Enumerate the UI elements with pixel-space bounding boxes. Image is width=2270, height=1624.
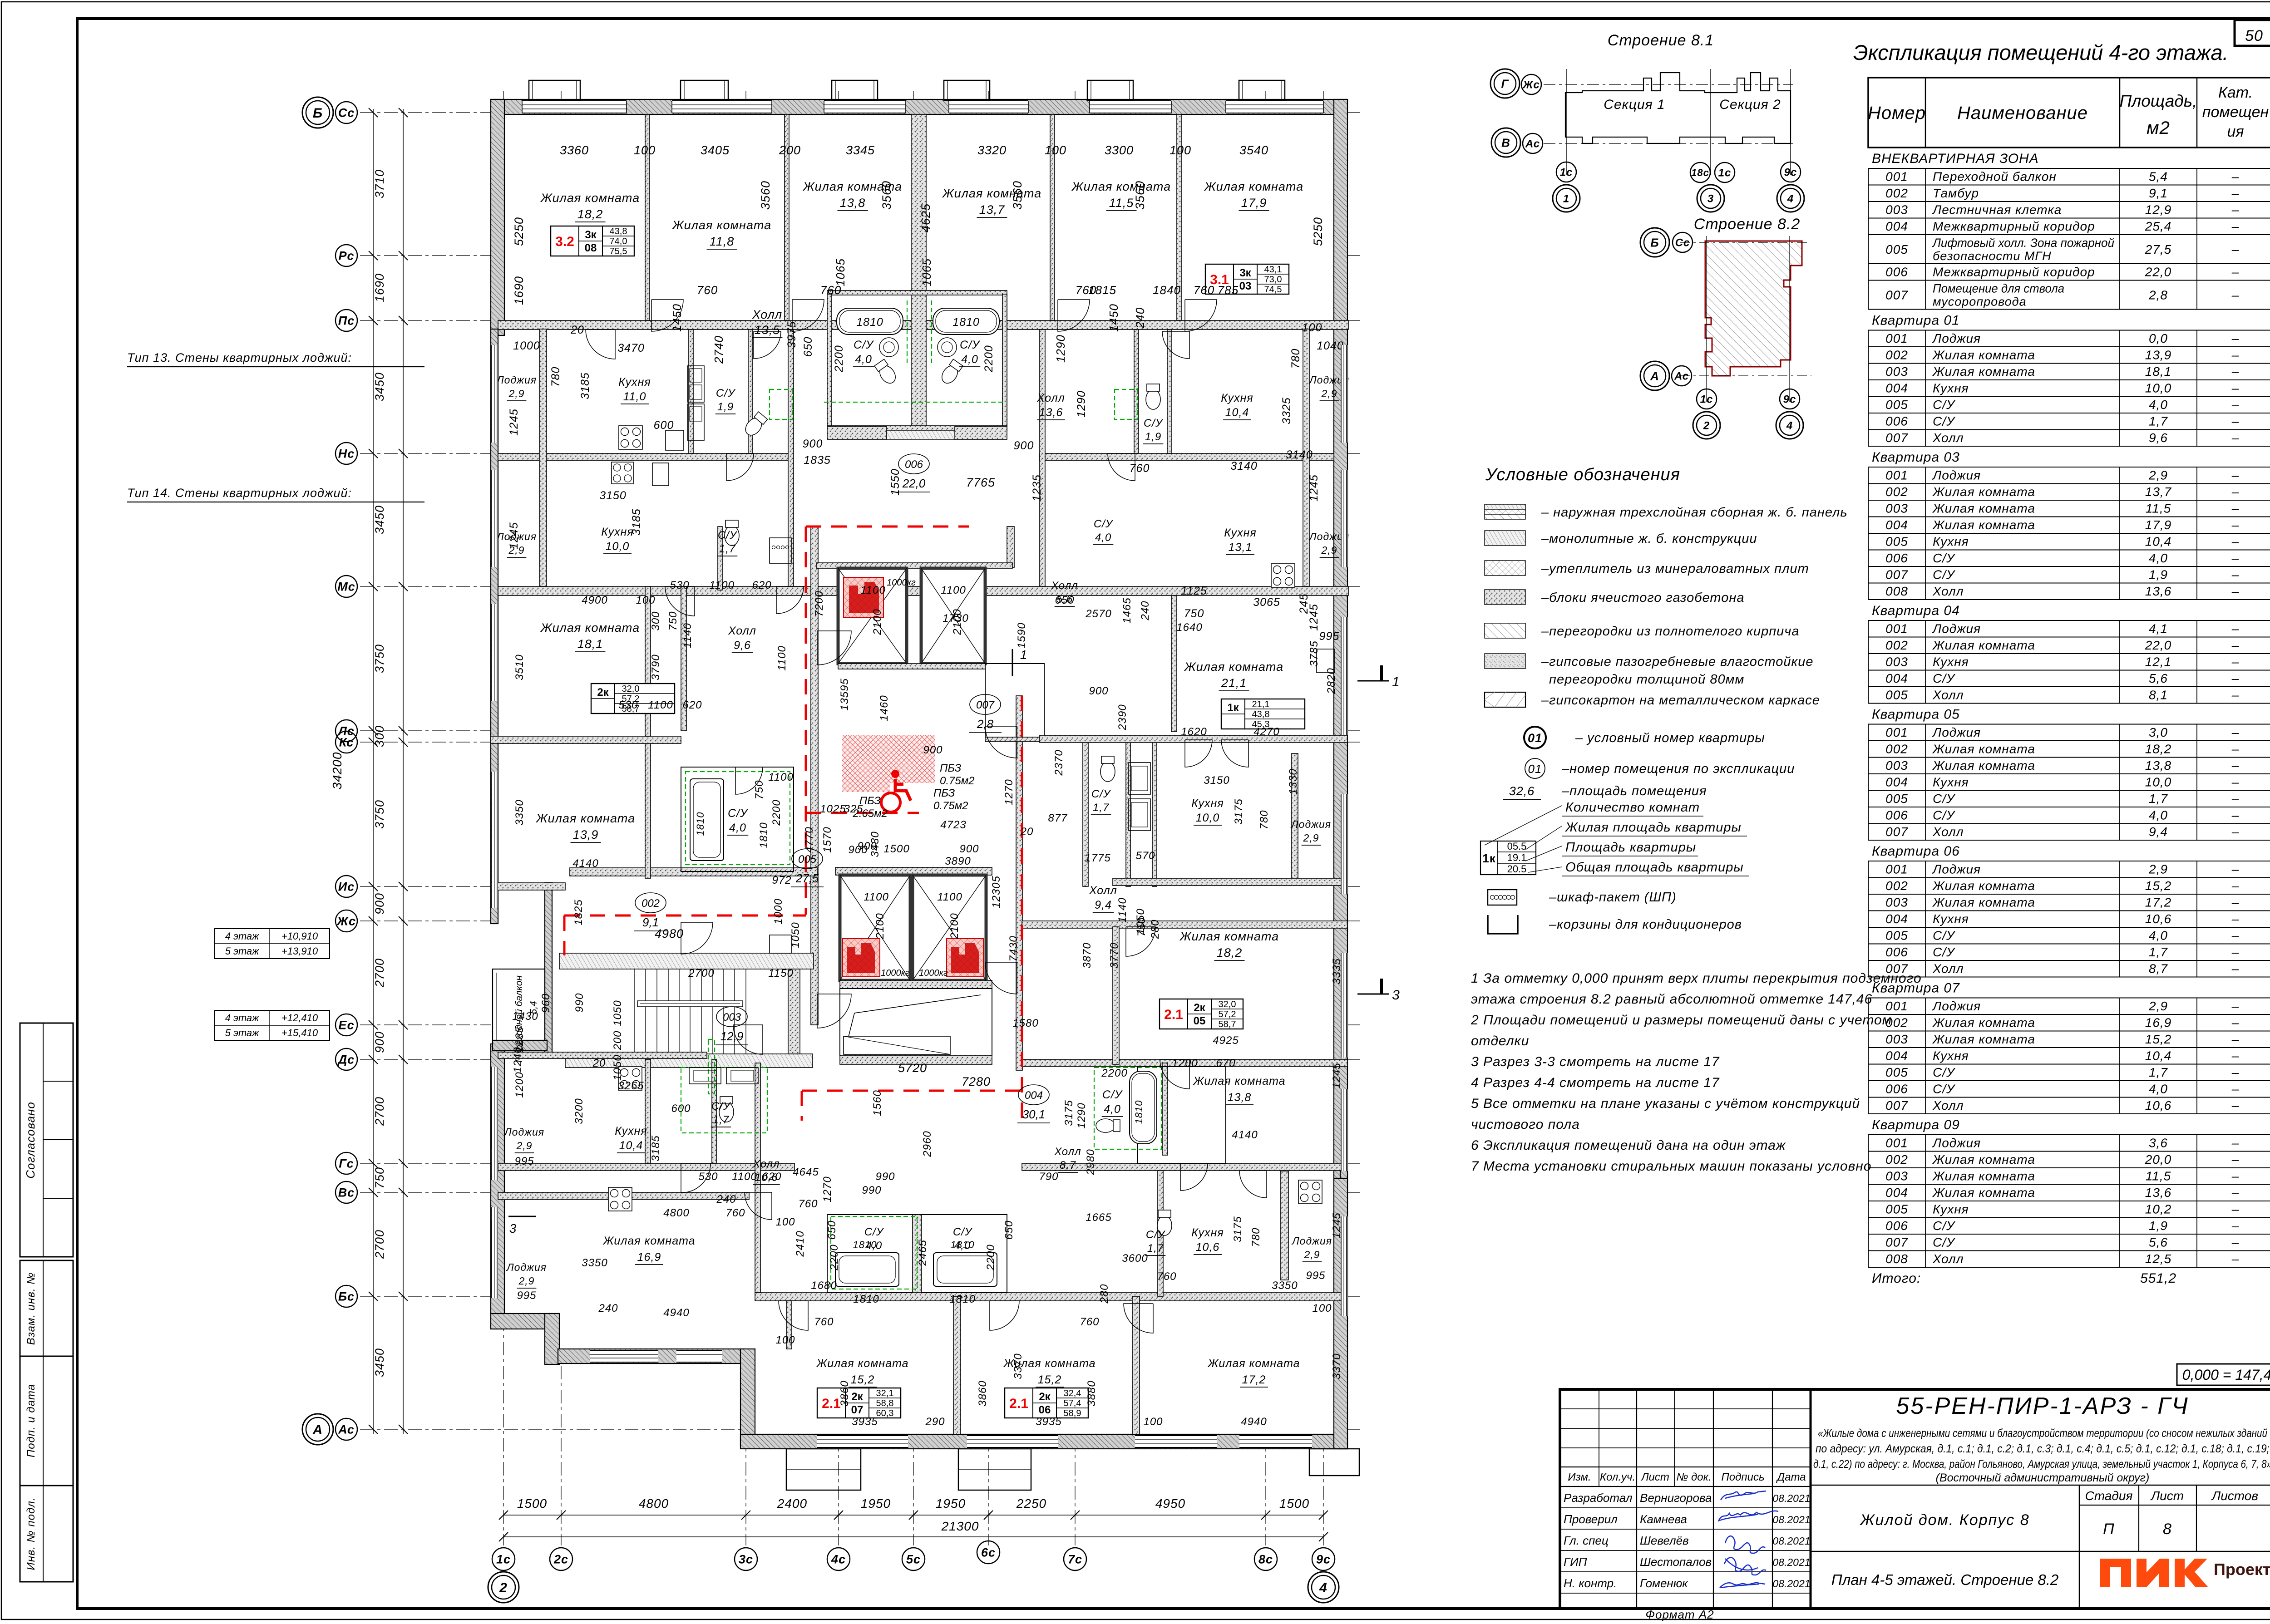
svg-text:1235: 1235 bbox=[1031, 474, 1043, 502]
svg-text:1000кг: 1000кг bbox=[919, 968, 948, 978]
svg-text:В: В bbox=[1501, 136, 1510, 149]
svg-text:2: 2 bbox=[499, 1580, 508, 1595]
svg-text:15,2: 15,2 bbox=[2145, 1032, 2172, 1046]
svg-text:–: – bbox=[2231, 1098, 2240, 1112]
svg-text:003: 003 bbox=[1885, 364, 1908, 379]
svg-text:18,2: 18,2 bbox=[577, 207, 603, 221]
svg-text:С/У: С/У bbox=[854, 339, 874, 351]
svg-text:Кухня: Кухня bbox=[1933, 1049, 1969, 1063]
svg-text:001: 001 bbox=[1885, 622, 1908, 636]
svg-text:1500: 1500 bbox=[883, 843, 909, 855]
svg-text:1950: 1950 bbox=[936, 1496, 966, 1511]
svg-text:м2: м2 bbox=[2147, 118, 2170, 138]
svg-text:4,0: 4,0 bbox=[961, 353, 978, 366]
svg-text:760: 760 bbox=[1080, 1316, 1099, 1328]
svg-text:007: 007 bbox=[1885, 1235, 1908, 1250]
svg-text:27,5: 27,5 bbox=[2145, 242, 2172, 256]
svg-text:3175: 3175 bbox=[1233, 798, 1245, 824]
svg-text:1к: 1к bbox=[1482, 851, 1495, 865]
svg-text:Вс: Вс bbox=[338, 1186, 355, 1200]
svg-text:Холл: Холл bbox=[1932, 962, 1964, 976]
svg-text:Гоменюк: Гоменюк bbox=[1640, 1576, 1688, 1590]
svg-text:32,6: 32,6 bbox=[1509, 784, 1535, 798]
svg-text:1 За отметку 0,000 принят верх: 1 За отметку 0,000 принят верх плиты пер… bbox=[1471, 971, 1922, 986]
svg-text:помещен: помещен bbox=[2202, 103, 2269, 121]
svg-text:Холл: Холл bbox=[1054, 1146, 1081, 1158]
svg-text:9,4: 9,4 bbox=[2149, 825, 2168, 839]
svg-text:Холл: Холл bbox=[1932, 825, 1964, 839]
svg-text:Лоджия: Лоджия bbox=[1932, 725, 1981, 739]
svg-text:Межквартирный коридор: Межквартирный коридор bbox=[1933, 219, 2095, 233]
svg-text:13,5: 13,5 bbox=[755, 323, 780, 337]
svg-text:3750: 3750 bbox=[373, 644, 386, 673]
svg-text:1с: 1с bbox=[1560, 167, 1573, 179]
svg-text:Кухня: Кухня bbox=[1933, 912, 1969, 926]
svg-text:10,4: 10,4 bbox=[619, 1139, 643, 1152]
svg-text:5720: 5720 bbox=[898, 1061, 927, 1075]
svg-text:Шевелёв: Шевелёв bbox=[1640, 1534, 1689, 1547]
svg-text:32,1: 32,1 bbox=[876, 1388, 894, 1398]
svg-text:Секция 2: Секция 2 bbox=[1719, 97, 1781, 112]
svg-text:1680: 1680 bbox=[811, 1280, 837, 1292]
svg-text:1500: 1500 bbox=[517, 1496, 547, 1511]
svg-text:1450: 1450 bbox=[670, 304, 684, 332]
svg-text:11,5: 11,5 bbox=[2146, 1169, 2171, 1183]
svg-text:2980: 2980 bbox=[1085, 1149, 1097, 1175]
svg-text:01: 01 bbox=[1528, 731, 1542, 745]
svg-text:2,9: 2,9 bbox=[1304, 1249, 1320, 1260]
svg-text:10,4: 10,4 bbox=[2145, 535, 2172, 549]
svg-text:Холл: Холл bbox=[752, 308, 782, 321]
svg-text:1570: 1570 bbox=[821, 827, 834, 852]
svg-text:1: 1 bbox=[1020, 648, 1028, 662]
svg-text:2,9: 2,9 bbox=[1321, 388, 1337, 399]
svg-text:4270: 4270 bbox=[1253, 726, 1279, 738]
svg-text:004: 004 bbox=[1885, 912, 1908, 926]
svg-text:–: – bbox=[2231, 288, 2240, 302]
svg-text:551,2: 551,2 bbox=[2140, 1271, 2176, 1286]
svg-text:15,2: 15,2 bbox=[851, 1373, 875, 1386]
svg-text:18,1: 18,1 bbox=[577, 637, 603, 651]
svg-text:П: П bbox=[2103, 1521, 2115, 1538]
svg-text:1730: 1730 bbox=[943, 612, 968, 625]
svg-text:003: 003 bbox=[1885, 1032, 1908, 1046]
svg-text:С/У: С/У bbox=[864, 1226, 884, 1238]
svg-text:43,1: 43,1 bbox=[1264, 265, 1282, 275]
svg-text:Межквартирный коридор: Межквартирный коридор bbox=[1933, 265, 2095, 279]
svg-text:5 этаж: 5 этаж bbox=[225, 1027, 259, 1038]
svg-text:3510: 3510 bbox=[513, 654, 526, 680]
svg-text:2,9: 2,9 bbox=[516, 1140, 533, 1152]
svg-text:1050: 1050 bbox=[612, 1000, 624, 1026]
svg-text:100: 100 bbox=[1045, 143, 1066, 157]
svg-text:отделки: отделки bbox=[1471, 1033, 1529, 1048]
svg-text:–: – bbox=[2231, 1152, 2240, 1166]
svg-text:«Жилые дома с инженерными сетя: «Жилые дома с инженерными сетями и благо… bbox=[1818, 1427, 2267, 1440]
svg-text:10,4: 10,4 bbox=[1225, 406, 1249, 419]
svg-text:Квартира 01: Квартира 01 bbox=[1872, 313, 1960, 328]
svg-text:3750: 3750 bbox=[373, 800, 386, 829]
svg-text:Жилая комната: Жилая комната bbox=[815, 1357, 908, 1370]
svg-text:007: 007 bbox=[1885, 568, 1908, 582]
svg-text:780: 780 bbox=[549, 367, 562, 387]
svg-text:4с: 4с bbox=[831, 1553, 846, 1566]
svg-text:17,9: 17,9 bbox=[2145, 518, 2172, 532]
svg-text:Нс: Нс bbox=[338, 447, 355, 461]
svg-text:900: 900 bbox=[1014, 439, 1034, 452]
svg-text:5250: 5250 bbox=[1311, 217, 1325, 246]
svg-text:100: 100 bbox=[775, 1334, 795, 1346]
svg-text:С/У: С/У bbox=[1933, 1082, 1956, 1096]
svg-text:Экспликация помещений 4-го эта: Экспликация помещений 4-го этажа. bbox=[1853, 40, 2229, 64]
svg-text:3560: 3560 bbox=[1133, 181, 1147, 210]
svg-text:С/У: С/У bbox=[718, 529, 738, 541]
svg-text:План 4-5 этажей. Строение 8.2: План 4-5 этажей. Строение 8.2 bbox=[1831, 1571, 2058, 1588]
svg-text:С/У: С/У bbox=[1933, 671, 1956, 685]
svg-text:2820: 2820 bbox=[1325, 668, 1337, 694]
svg-text:32,4: 32,4 bbox=[1064, 1388, 1081, 1398]
svg-text:01: 01 bbox=[1528, 762, 1542, 776]
svg-text:08.2021: 08.2021 bbox=[1772, 1492, 1810, 1504]
svg-text:3360: 3360 bbox=[560, 143, 589, 157]
svg-text:–гипсокартон на металлическом: –гипсокартон на металлическом каркасе bbox=[1541, 693, 1820, 708]
svg-text:Лоджия: Лоджия bbox=[1291, 1235, 1332, 1247]
svg-text:Лист: Лист bbox=[1640, 1471, 1669, 1483]
svg-text:12,1: 12,1 bbox=[2145, 655, 2172, 669]
svg-text:760: 760 bbox=[798, 1198, 818, 1210]
svg-text:3325: 3325 bbox=[1280, 397, 1293, 424]
svg-text:по адресу: ул. Амурская, д.1,: по адресу: ул. Амурская, д.1, с.1; д.1, … bbox=[1816, 1442, 2270, 1455]
svg-text:005: 005 bbox=[1885, 398, 1908, 412]
svg-text:600: 600 bbox=[654, 419, 674, 432]
svg-text:2700: 2700 bbox=[373, 1097, 386, 1126]
svg-text:–: – bbox=[2231, 1235, 2240, 1250]
svg-text:1290: 1290 bbox=[1075, 390, 1088, 418]
svg-text:–: – bbox=[2231, 999, 2240, 1013]
svg-text:17,2: 17,2 bbox=[1242, 1373, 1266, 1386]
svg-text:100: 100 bbox=[1302, 321, 1323, 334]
svg-text:1с: 1с bbox=[1700, 394, 1713, 406]
svg-text:Кухня: Кухня bbox=[1191, 1226, 1224, 1239]
svg-text:001: 001 bbox=[1885, 862, 1908, 876]
svg-text:20,0: 20,0 bbox=[2145, 1152, 2172, 1166]
svg-text:3785: 3785 bbox=[1308, 640, 1320, 666]
svg-text:Инв. № подл.: Инв. № подл. bbox=[25, 1497, 37, 1570]
svg-text:003: 003 bbox=[723, 1011, 741, 1024]
svg-text:007: 007 bbox=[976, 699, 995, 711]
svg-text:58,8: 58,8 bbox=[876, 1398, 894, 1408]
svg-text:Холл: Холл bbox=[1051, 580, 1078, 592]
svg-text:–: – bbox=[2231, 398, 2240, 412]
svg-text:13,9: 13,9 bbox=[573, 828, 599, 842]
svg-text:ГИП: ГИП bbox=[1564, 1555, 1587, 1569]
svg-text:3185: 3185 bbox=[579, 372, 592, 399]
svg-text:4645: 4645 bbox=[793, 1166, 819, 1178]
svg-text:–корзины для кондиционеров: –корзины для кондиционеров bbox=[1549, 917, 1742, 932]
svg-text:–: – bbox=[2231, 879, 2240, 893]
svg-text:+13,910: +13,910 bbox=[281, 945, 318, 957]
svg-text:–: – bbox=[2231, 186, 2240, 200]
svg-text:3770: 3770 bbox=[1108, 942, 1120, 968]
svg-text:3200: 3200 bbox=[573, 1098, 585, 1124]
svg-text:990: 990 bbox=[862, 1184, 881, 1196]
svg-text:21300: 21300 bbox=[941, 1519, 979, 1533]
svg-text:200: 200 bbox=[779, 143, 801, 157]
svg-text:9,6: 9,6 bbox=[734, 639, 751, 652]
svg-text:3к: 3к bbox=[585, 229, 597, 241]
svg-text:Проверил: Проверил bbox=[1564, 1512, 1618, 1526]
svg-text:4,0: 4,0 bbox=[1095, 531, 1111, 544]
svg-text:08.2021: 08.2021 bbox=[1772, 1535, 1810, 1547]
svg-text:С/У: С/У bbox=[1933, 568, 1956, 582]
svg-text:570: 570 bbox=[1135, 850, 1155, 862]
svg-text:–утеплитель из минераловатных: –утеплитель из минераловатных плит bbox=[1541, 561, 1809, 576]
svg-text:Жилая комната: Жилая комната bbox=[1932, 502, 2035, 516]
svg-text:–: – bbox=[2231, 1016, 2240, 1030]
svg-text:Кол.уч.: Кол.уч. bbox=[1600, 1471, 1635, 1483]
svg-text:07: 07 bbox=[851, 1404, 864, 1416]
svg-text:3185: 3185 bbox=[630, 508, 643, 536]
svg-text:Жилая комната: Жилая комната bbox=[1932, 348, 2035, 362]
svg-text:57,4: 57,4 bbox=[1064, 1398, 1081, 1408]
svg-text:20.5: 20.5 bbox=[1507, 863, 1527, 875]
svg-text:5,4: 5,4 bbox=[2149, 170, 2168, 184]
svg-text:006: 006 bbox=[905, 458, 923, 471]
svg-text:Квартира 07: Квартира 07 bbox=[1872, 981, 1960, 996]
svg-text:–: – bbox=[2231, 1202, 2240, 1216]
svg-text:Согласовано: Согласовано bbox=[24, 1102, 37, 1179]
svg-text:3600: 3600 bbox=[1122, 1252, 1148, 1265]
svg-text:Кухня: Кухня bbox=[601, 526, 634, 538]
svg-text:4980: 4980 bbox=[655, 927, 684, 940]
svg-text:300: 300 bbox=[373, 725, 386, 747]
svg-text:4,0: 4,0 bbox=[2149, 808, 2168, 822]
svg-text:Секция 1: Секция 1 bbox=[1604, 97, 1665, 112]
svg-text:750: 750 bbox=[1184, 607, 1204, 620]
svg-text:32,0: 32,0 bbox=[1219, 999, 1236, 1009]
svg-text:2.1: 2.1 bbox=[1164, 1007, 1183, 1022]
svg-text:+12,410: +12,410 bbox=[281, 1012, 318, 1024]
svg-text:Лоджия: Лоджия bbox=[1932, 331, 1981, 345]
svg-text:620: 620 bbox=[752, 579, 771, 591]
svg-text:Строение 8.2: Строение 8.2 bbox=[1694, 216, 1800, 233]
svg-text:240: 240 bbox=[1139, 600, 1151, 620]
svg-text:60,3: 60,3 bbox=[876, 1408, 894, 1418]
svg-text:13595: 13595 bbox=[839, 678, 851, 711]
svg-text:–площадь помещения: –площадь помещения bbox=[1561, 784, 1707, 798]
svg-text:004: 004 bbox=[1885, 1186, 1908, 1200]
svg-text:1065: 1065 bbox=[834, 258, 847, 286]
svg-text:43,8: 43,8 bbox=[610, 226, 627, 236]
svg-text:Итого:: Итого: bbox=[1872, 1271, 1921, 1286]
svg-text:4800: 4800 bbox=[663, 1207, 689, 1219]
svg-text:2к: 2к bbox=[1194, 1002, 1205, 1014]
svg-text:1245: 1245 bbox=[1308, 474, 1320, 502]
svg-text:003: 003 bbox=[1885, 758, 1908, 773]
svg-text:780: 780 bbox=[1250, 1227, 1262, 1247]
svg-text:18,2: 18,2 bbox=[2145, 742, 2172, 756]
svg-text:1690: 1690 bbox=[512, 276, 526, 305]
svg-text:20: 20 bbox=[570, 324, 584, 336]
svg-text:1810: 1810 bbox=[758, 822, 770, 848]
svg-text:1100: 1100 bbox=[709, 579, 735, 591]
svg-text:3,0: 3,0 bbox=[2149, 725, 2168, 739]
svg-text:1,9: 1,9 bbox=[2149, 568, 2168, 582]
svg-text:600: 600 bbox=[671, 1102, 691, 1115]
svg-text:1040: 1040 bbox=[1317, 340, 1344, 352]
svg-text:74,0: 74,0 bbox=[610, 236, 627, 246]
svg-text:7280: 7280 bbox=[962, 1075, 991, 1088]
svg-text:1270: 1270 bbox=[1003, 779, 1015, 805]
svg-text:Листов: Листов bbox=[2211, 1489, 2258, 1503]
svg-text:1690: 1690 bbox=[373, 273, 386, 302]
svg-text:3405: 3405 bbox=[701, 143, 730, 157]
svg-text:С/У: С/У bbox=[1933, 1235, 1956, 1250]
svg-text:1240: 1240 bbox=[512, 1047, 524, 1073]
svg-text:–монолитные ж. б. конструкции: –монолитные ж. б. конструкции bbox=[1541, 531, 1757, 546]
svg-text:Дата: Дата bbox=[1776, 1471, 1806, 1483]
svg-text:–: – bbox=[2231, 655, 2240, 669]
svg-text:1000: 1000 bbox=[513, 340, 540, 352]
svg-text:785: 785 bbox=[1218, 283, 1239, 297]
svg-text:005: 005 bbox=[798, 853, 817, 866]
svg-text:Жс: Жс bbox=[1522, 79, 1540, 91]
svg-text:001: 001 bbox=[1885, 170, 1908, 184]
svg-text:Ас: Ас bbox=[1525, 138, 1540, 150]
svg-text:чистового пола: чистового пола bbox=[1471, 1117, 1580, 1132]
svg-text:С/У: С/У bbox=[1933, 551, 1956, 565]
svg-text:–: – bbox=[2231, 518, 2240, 532]
svg-text:Рс: Рс bbox=[338, 249, 354, 263]
svg-text:1140: 1140 bbox=[681, 623, 694, 648]
svg-text:13,6: 13,6 bbox=[2145, 1186, 2172, 1200]
svg-text:–: – bbox=[2231, 929, 2240, 943]
svg-text:7430: 7430 bbox=[1007, 935, 1020, 961]
svg-text:3540: 3540 bbox=[1239, 143, 1268, 157]
svg-text:Кухня: Кухня bbox=[1933, 775, 1969, 789]
svg-text:1460: 1460 bbox=[878, 695, 890, 721]
svg-text:001: 001 bbox=[1885, 999, 1908, 1013]
svg-text:760: 760 bbox=[1194, 283, 1214, 297]
svg-text:530: 530 bbox=[618, 699, 638, 711]
svg-text:Строение 8.1: Строение 8.1 bbox=[1608, 32, 1714, 49]
svg-text:03: 03 bbox=[1239, 280, 1252, 292]
svg-text:+10,910: +10,910 bbox=[281, 930, 318, 942]
svg-text:мусоропровода: мусоропровода bbox=[1933, 295, 2027, 309]
svg-text:670: 670 bbox=[1216, 1057, 1235, 1069]
svg-text:1065: 1065 bbox=[920, 258, 933, 286]
svg-text:–: – bbox=[2231, 862, 2240, 876]
svg-text:–: – bbox=[2231, 431, 2240, 445]
svg-text:25,4: 25,4 bbox=[2145, 219, 2172, 233]
svg-text:12,9: 12,9 bbox=[720, 1029, 744, 1043]
svg-text:900: 900 bbox=[959, 843, 979, 855]
svg-text:9с: 9с bbox=[1784, 167, 1797, 179]
svg-text:58,9: 58,9 bbox=[1064, 1408, 1081, 1418]
svg-text:Кухня: Кухня bbox=[1933, 655, 1969, 669]
svg-text:Помещение для ствола: Помещение для ствола bbox=[1933, 282, 2064, 295]
svg-text:002: 002 bbox=[1885, 1016, 1908, 1030]
svg-text:2.1: 2.1 bbox=[822, 1396, 841, 1411]
svg-text:–: – bbox=[2231, 1082, 2240, 1096]
svg-text:11,0: 11,0 bbox=[623, 390, 646, 403]
svg-text:Жилая комната: Жилая комната bbox=[540, 621, 640, 635]
svg-text:4 Разрез 4-4 смотреть на листе: 4 Разрез 4-4 смотреть на листе 17 bbox=[1471, 1075, 1720, 1090]
svg-text:–: – bbox=[2231, 468, 2240, 482]
svg-text:004: 004 bbox=[1885, 219, 1908, 233]
svg-text:Тамбур: Тамбур bbox=[1933, 186, 1979, 200]
svg-text:Жилая комната: Жилая комната bbox=[1932, 1152, 2035, 1166]
svg-text:08.2021: 08.2021 bbox=[1772, 1578, 1810, 1590]
svg-text:Гс: Гс bbox=[339, 1157, 354, 1171]
svg-text:Жилая комната: Жилая комната bbox=[1932, 742, 2035, 756]
svg-text:2700: 2700 bbox=[373, 1230, 386, 1259]
svg-text:2465: 2465 bbox=[917, 1240, 929, 1266]
svg-text:4 этаж: 4 этаж bbox=[225, 930, 259, 942]
svg-text:2к: 2к bbox=[597, 686, 609, 699]
svg-text:4,0: 4,0 bbox=[2149, 398, 2168, 412]
svg-text:Кухня: Кухня bbox=[1933, 381, 1969, 395]
svg-text:13,7: 13,7 bbox=[979, 203, 1005, 217]
svg-text:Жилая комната: Жилая комната bbox=[1207, 1357, 1300, 1370]
svg-text:С/У: С/У bbox=[1933, 1065, 1956, 1079]
svg-text:003: 003 bbox=[1885, 203, 1908, 217]
svg-text:Квартира 09: Квартира 09 bbox=[1872, 1117, 1960, 1132]
svg-text:С/У: С/У bbox=[1933, 945, 1956, 959]
svg-text:240: 240 bbox=[1133, 307, 1147, 329]
svg-text:2,9: 2,9 bbox=[1303, 832, 1319, 844]
svg-text:3560: 3560 bbox=[1011, 181, 1024, 210]
svg-text:1810: 1810 bbox=[949, 1293, 975, 1305]
svg-text:3450: 3450 bbox=[373, 505, 386, 534]
svg-text:1640: 1640 bbox=[1176, 621, 1202, 634]
svg-text:1200: 1200 bbox=[513, 1072, 526, 1097]
svg-text:12,5: 12,5 bbox=[2145, 1252, 2172, 1266]
svg-text:ВНЕКВАРТИРНАЯ ЗОНА: ВНЕКВАРТИРНАЯ ЗОНА bbox=[1872, 151, 2039, 166]
svg-text:2100: 2100 bbox=[871, 609, 883, 635]
svg-text:13,8: 13,8 bbox=[840, 196, 866, 210]
svg-text:005: 005 bbox=[1885, 242, 1908, 256]
svg-text:1с: 1с bbox=[1718, 167, 1732, 179]
svg-text:Кс: Кс bbox=[339, 736, 354, 749]
svg-text:Г: Г bbox=[1501, 77, 1509, 90]
svg-text:3 Разрез 3-3 смотреть на листе: 3 Разрез 3-3 смотреть на листе 17 bbox=[1471, 1054, 1720, 1069]
svg-text:–: – bbox=[2231, 485, 2240, 499]
svg-text:1620: 1620 bbox=[1181, 726, 1207, 738]
svg-text:– наружная трехслойная сборная: – наружная трехслойная сборная ж. б. пан… bbox=[1541, 505, 1848, 520]
svg-text:Номер: Номер bbox=[1868, 103, 1926, 123]
svg-text:290: 290 bbox=[925, 1416, 945, 1428]
svg-text:4770: 4770 bbox=[803, 827, 815, 852]
svg-text:650: 650 bbox=[1055, 594, 1074, 606]
svg-text:3175: 3175 bbox=[1232, 1216, 1244, 1242]
svg-text:4: 4 bbox=[1786, 420, 1793, 432]
svg-text:5,6: 5,6 bbox=[2149, 671, 2168, 685]
svg-text:Ес: Ес bbox=[338, 1019, 354, 1032]
svg-text:1100: 1100 bbox=[860, 584, 886, 596]
svg-text:3: 3 bbox=[509, 1221, 517, 1235]
svg-text:10,6: 10,6 bbox=[2145, 1098, 2172, 1112]
svg-text:006: 006 bbox=[1885, 414, 1908, 428]
svg-text:–: – bbox=[2231, 671, 2240, 685]
svg-text:3: 3 bbox=[1392, 988, 1400, 1003]
svg-text:10,0: 10,0 bbox=[2145, 775, 2172, 789]
svg-text:2740: 2740 bbox=[712, 335, 725, 364]
svg-text:3860: 3860 bbox=[839, 1380, 851, 1406]
svg-text:001: 001 bbox=[1885, 331, 1908, 345]
svg-text:900: 900 bbox=[373, 893, 386, 915]
svg-text:5,6: 5,6 bbox=[2149, 1235, 2168, 1250]
